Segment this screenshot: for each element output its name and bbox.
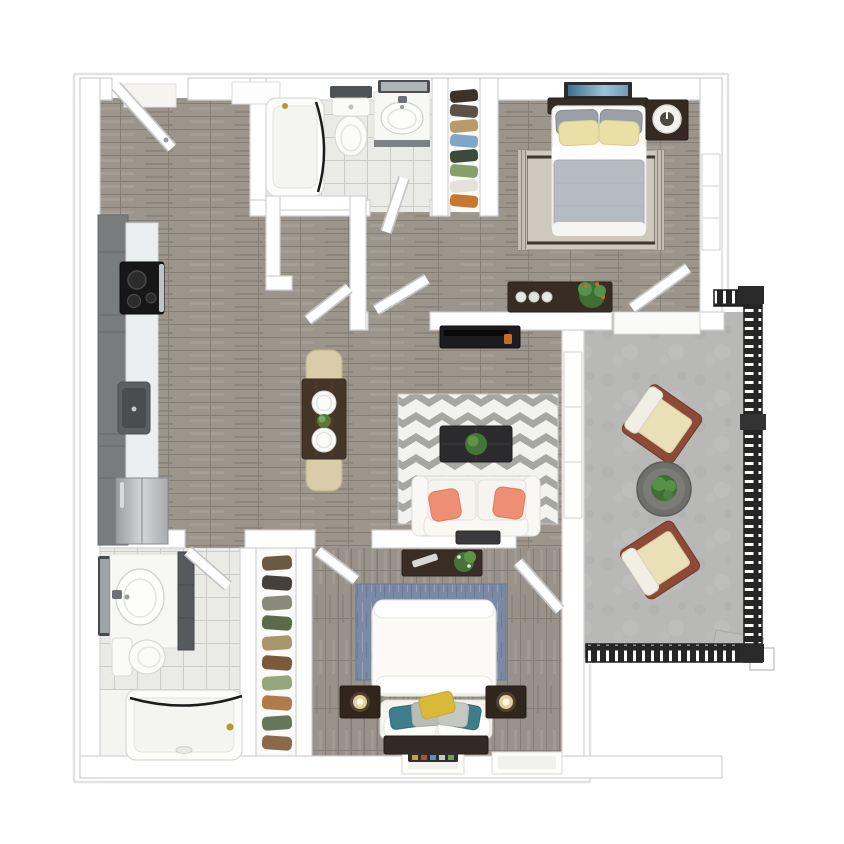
bedroom1-window <box>702 154 720 250</box>
wall-bathroom1-closet-divider <box>432 78 448 216</box>
bathroom2-mirror-glass <box>100 559 109 633</box>
nightstand-right-lamp-core <box>503 699 510 706</box>
windowsill-item-2 <box>421 755 427 760</box>
stove-burner-small-1 <box>128 295 141 308</box>
wall-alcove-bottom-stub <box>266 276 292 290</box>
dresser2-plant-leaf <box>464 551 476 563</box>
bedroom2-duvet-top-roll <box>374 600 494 618</box>
closet1-shoe-pair-4 <box>450 134 479 148</box>
bathroom2-faucet-dot <box>125 595 130 600</box>
closet2-shoe-pair-8 <box>262 695 293 711</box>
windowsill-item-4 <box>439 755 445 760</box>
windowsill-item-1 <box>412 755 418 760</box>
bathroom1-towel-bar <box>330 86 372 98</box>
closet2-shoe-pair-7 <box>262 675 293 691</box>
bathroom2-tub-drain <box>176 747 192 754</box>
dresser2-plant-bloom-2 <box>467 564 471 568</box>
living-balcony-window <box>564 352 582 518</box>
balcony-plant-leaf-3 <box>663 490 673 500</box>
closet1-shoe-pair-3 <box>450 119 479 133</box>
wall-alcove-right <box>350 196 366 330</box>
dresser1-plant-bloom-1 <box>584 284 588 288</box>
closet1-shoe-pair-7 <box>450 179 479 193</box>
wall-living-bottom-b <box>245 530 315 548</box>
closet2-shoe-pair-5 <box>262 635 293 651</box>
balcony-plant-leaf-1 <box>652 477 666 491</box>
dresser1-plant-leaf-2 <box>594 285 606 297</box>
toilet1-bowl <box>335 116 367 156</box>
closet1-shoe-pair-2 <box>450 104 479 118</box>
dresser1-plant-bloom-2 <box>595 282 599 286</box>
closet1-shoe-pair-6 <box>450 164 479 178</box>
tv-screen <box>444 330 508 336</box>
balcony-railing-right <box>744 288 762 662</box>
closet1-shoe-pair-5 <box>450 149 479 163</box>
tv-console-logo <box>504 334 512 344</box>
balcony-post-bottom-right <box>740 644 764 662</box>
nightstand-left-lamp-core <box>357 699 364 706</box>
closet2-shoe-pair-1 <box>262 555 293 571</box>
outer-wall-left <box>80 78 100 778</box>
dining-centerpiece-flower-1 <box>326 421 329 424</box>
bedroom2-duvet-lower-roll <box>376 676 492 694</box>
bathroom2-tub-faucet <box>227 724 234 731</box>
balcony-plant-leaf-2 <box>664 480 676 492</box>
dresser1-canister-3 <box>542 292 552 302</box>
coffee-table-plant-highlight <box>468 436 479 447</box>
toilet1-flush-button <box>349 105 354 110</box>
bathroom1-mirror-glass <box>381 82 427 91</box>
sofa-coral-pillow-left <box>428 488 463 523</box>
closet2-shoe-pair-2 <box>262 575 293 591</box>
dining-centerpiece-highlight <box>319 416 326 423</box>
bathroom1-faucet <box>398 96 407 103</box>
dinner-plate-2 <box>312 428 336 452</box>
bedroom1-quilt <box>554 160 644 228</box>
stove-burner-large <box>128 271 146 289</box>
wall-closet1-right <box>480 78 498 216</box>
dresser1-canister-1 <box>516 292 526 302</box>
stove-burner-small-2 <box>146 293 156 303</box>
wall-closet2-right <box>296 548 312 756</box>
bedroom1-wall-art-canvas <box>568 85 628 96</box>
fridge-handle <box>120 482 124 508</box>
wall-ledge-tablet <box>456 531 500 544</box>
dining-centerpiece-flower-2 <box>319 424 322 427</box>
bedroom1-yellow-pillow-left <box>558 120 599 146</box>
balcony-door-threshold <box>614 312 700 334</box>
bedroom1-rug-fringe-left <box>518 150 527 250</box>
bathroom1-faucet-dot <box>400 105 404 109</box>
closet1-floor <box>444 86 484 212</box>
bathroom1-tub-basin <box>273 106 317 188</box>
bathroom2-faucet <box>112 590 122 599</box>
closet2-shoe-pair-3 <box>262 595 293 611</box>
bathroom1-vanity-base <box>374 140 430 147</box>
balcony-post-mid-right <box>740 414 766 430</box>
stove-handle <box>159 264 164 312</box>
windowsill-item-3 <box>430 755 436 760</box>
closet2-shoe-pair-6 <box>262 655 293 671</box>
dresser1-canister-2 <box>529 292 539 302</box>
entry-door-handle <box>164 138 169 143</box>
bedroom1-rug-fringe-right <box>655 150 664 250</box>
dresser1-plant-bloom-3 <box>601 295 605 299</box>
closet2-shoe-pair-9 <box>262 715 293 731</box>
closet2-shoe-pair-10 <box>262 735 293 751</box>
closet1-shoe-pair-1 <box>450 89 479 103</box>
kitchen-sink-faucet <box>132 407 137 412</box>
bedroom1-yellow-pillow-right <box>598 120 639 146</box>
alcove-floor <box>274 206 354 282</box>
sofa-coral-pillow-right <box>492 486 526 520</box>
windowsill-item-5 <box>448 755 454 760</box>
closet1-shoe-pair-8 <box>450 194 479 208</box>
bedroom1-duvet-foot <box>552 222 646 236</box>
bedroom2-window-right-glass <box>498 756 556 769</box>
dinner-plate-1 <box>312 391 336 415</box>
dresser2-plant-bloom-1 <box>457 555 461 559</box>
balcony-post-top-right <box>738 286 764 304</box>
floor-plan <box>0 0 844 844</box>
dresser1-plant-leaf-1 <box>578 282 592 296</box>
bathroom2-cabinet-tower <box>178 552 194 650</box>
bedroom2-headboard <box>384 736 488 754</box>
balcony-railing-bottom <box>586 644 762 662</box>
closet2-shoe-pair-4 <box>262 615 293 631</box>
wall-bedroom1-bottom-c <box>698 312 724 330</box>
floor-plan-svg <box>0 0 844 844</box>
bathroom1-shower-fixture <box>282 103 288 109</box>
